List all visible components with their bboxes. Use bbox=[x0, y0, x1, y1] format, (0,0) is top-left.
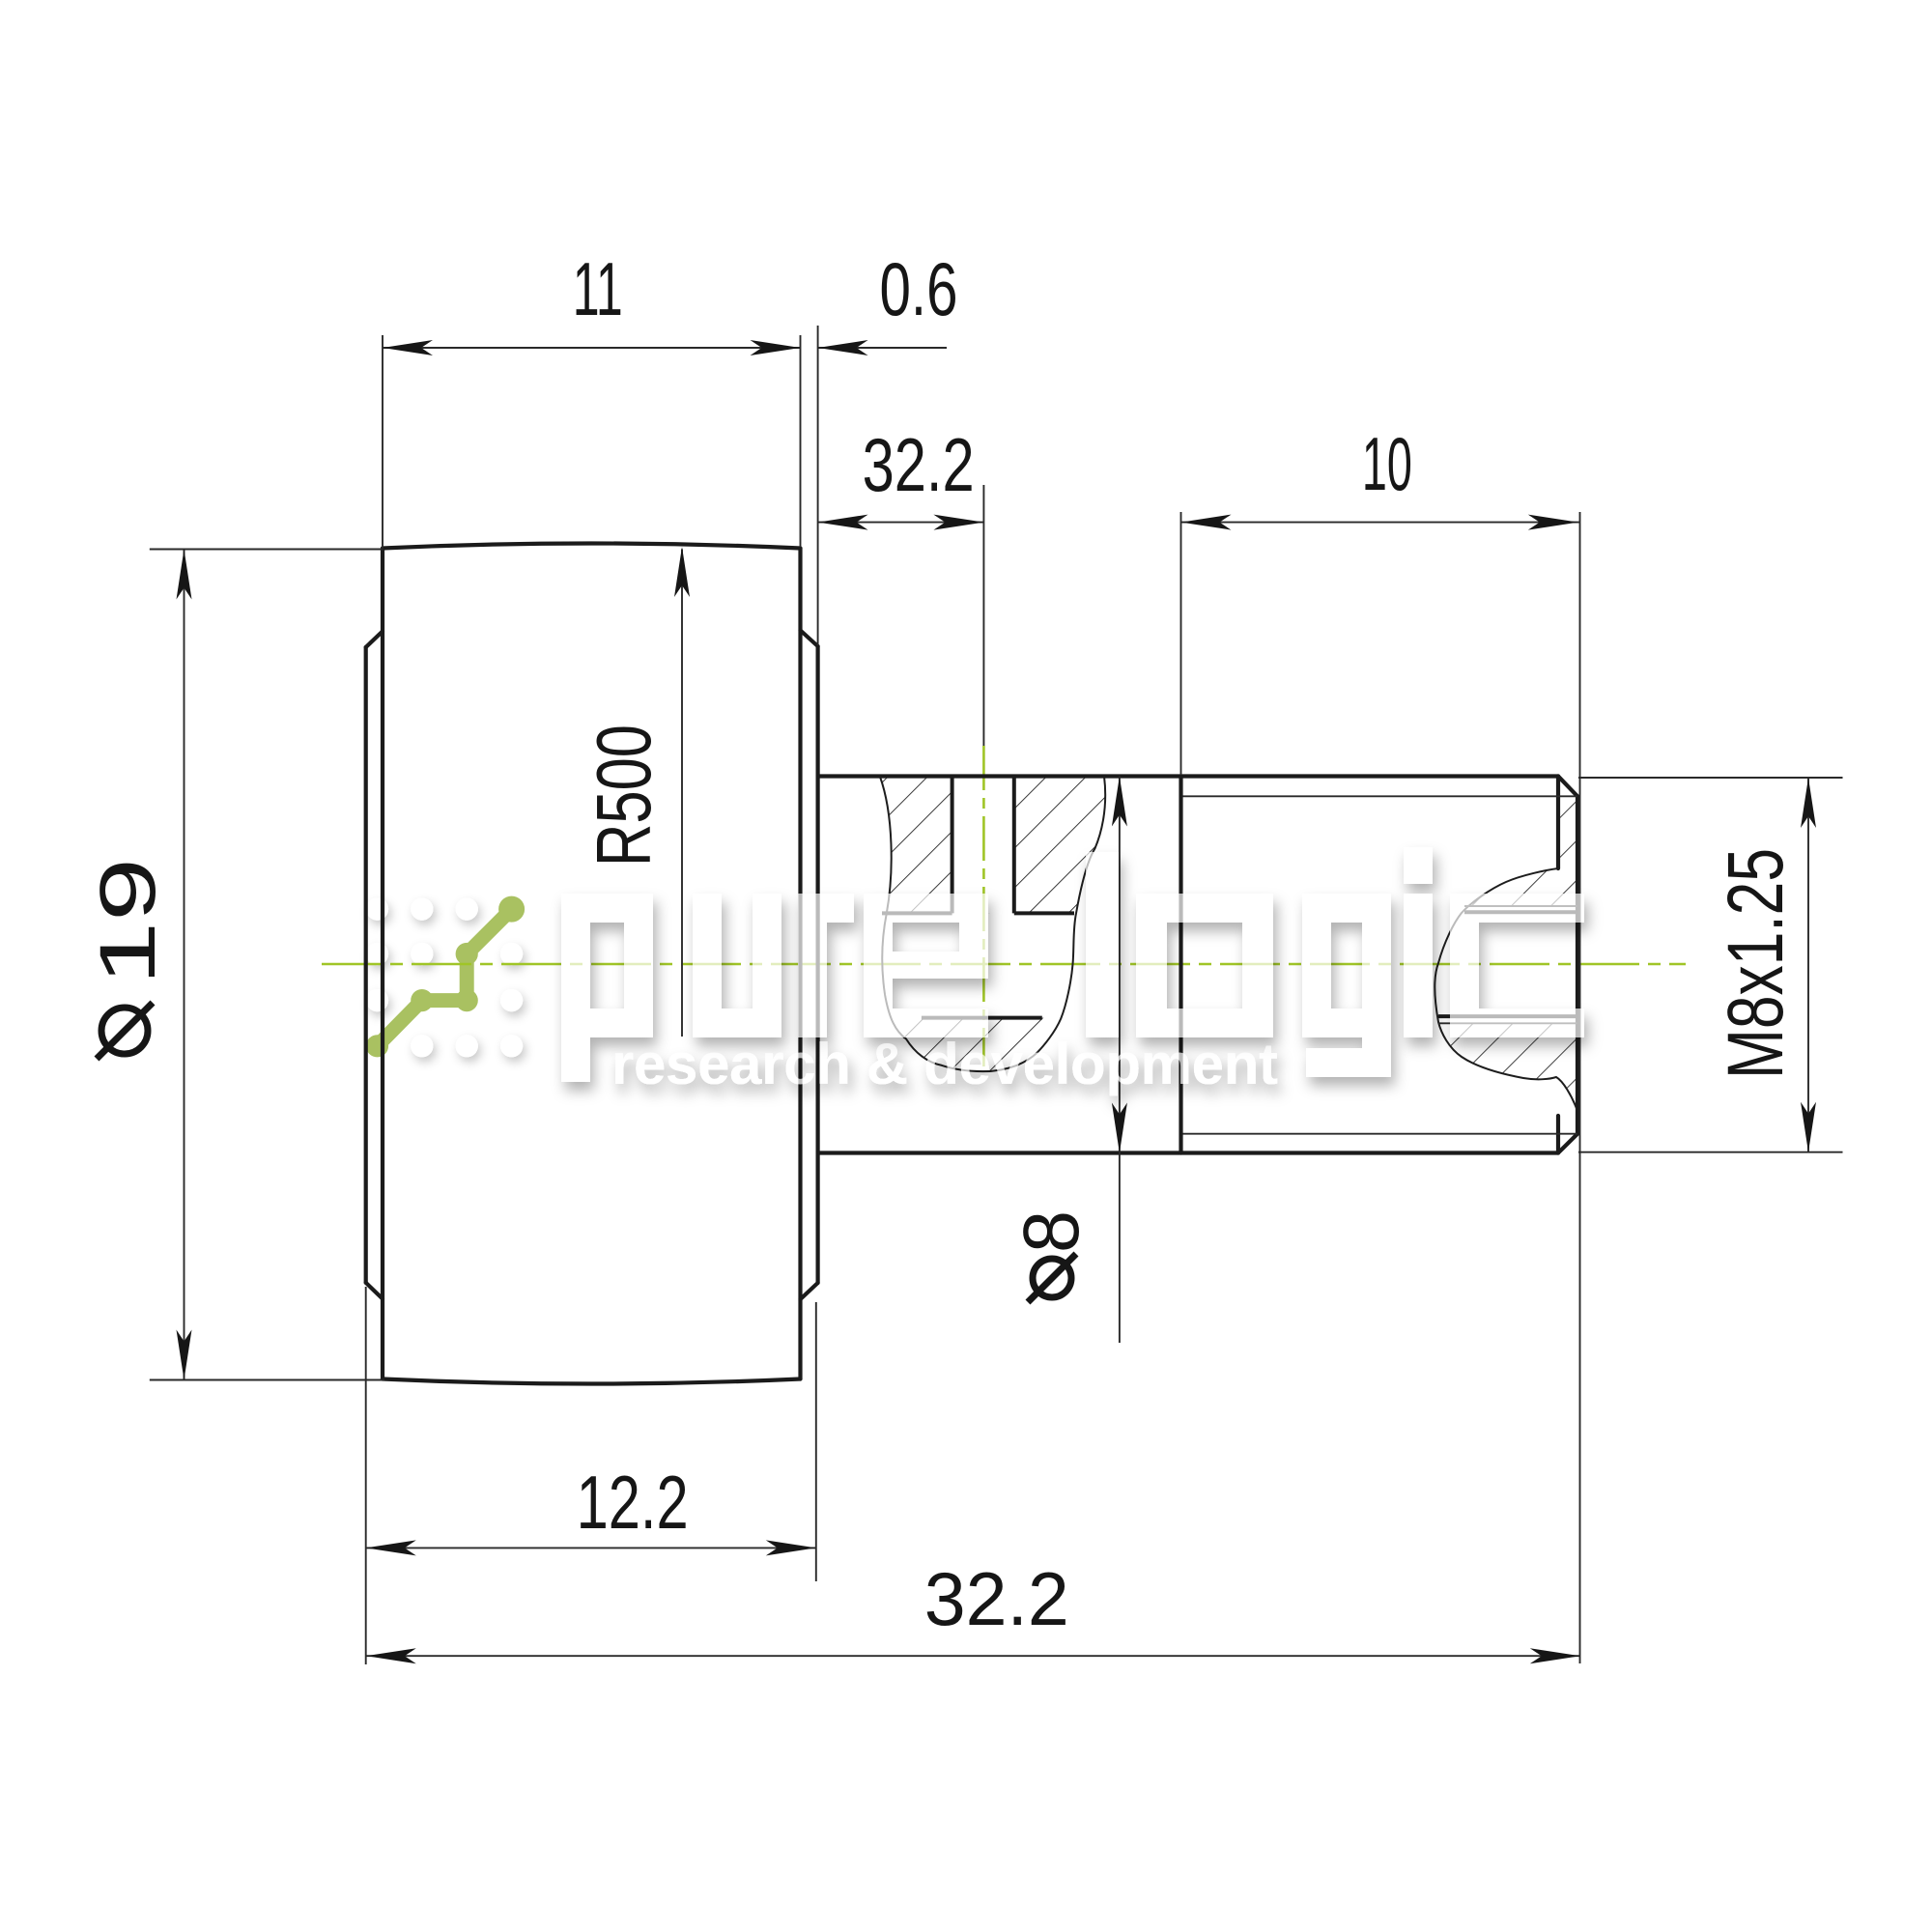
svg-text:0.6: 0.6 bbox=[880, 246, 958, 331]
svg-text:8: 8 bbox=[1008, 1210, 1095, 1253]
svg-text:32.2: 32.2 bbox=[924, 1556, 1069, 1641]
svg-text:research & development: research & development bbox=[611, 1032, 1278, 1096]
svg-text:11: 11 bbox=[573, 246, 623, 331]
svg-text:12.2: 12.2 bbox=[577, 1460, 689, 1545]
svg-text:32.2: 32.2 bbox=[863, 422, 975, 507]
svg-text:R500: R500 bbox=[581, 724, 667, 867]
svg-text:M8x1.25: M8x1.25 bbox=[1712, 848, 1800, 1079]
svg-text:19: 19 bbox=[84, 858, 172, 985]
svg-text:10: 10 bbox=[1362, 421, 1412, 506]
